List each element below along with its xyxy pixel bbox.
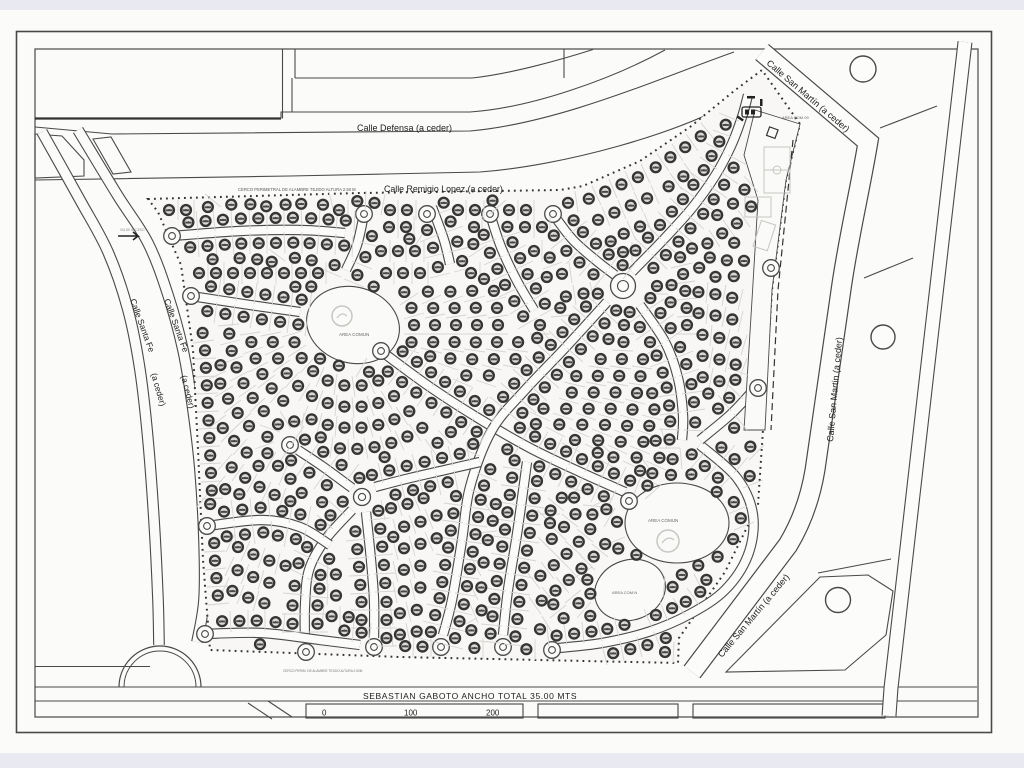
svg-text:0: 0 bbox=[322, 709, 327, 718]
svg-text:AREA COMUN: AREA COMUN bbox=[339, 332, 369, 337]
svg-text:SEBASTIAN GABOTO ANCHO TOTAL: SEBASTIAN GABOTO ANCHO TOTAL 35.00 MTS bbox=[363, 691, 577, 701]
svg-text:AREA COM 09: AREA COM 09 bbox=[782, 115, 809, 120]
svg-text:Calle Defensa (a ceder): Calle Defensa (a ceder) bbox=[357, 123, 452, 133]
svg-text:VIA DE ACCESO: VIA DE ACCESO bbox=[120, 228, 145, 232]
svg-text:Calle Remigio Lopez (a ceder): Calle Remigio Lopez (a ceder) bbox=[384, 184, 503, 194]
svg-text:CERCO PERIM. DE ALAMBRE TEJIDO: CERCO PERIM. DE ALAMBRE TEJIDO ALTURA 2.… bbox=[283, 669, 363, 673]
svg-text:AREA COM.N: AREA COM.N bbox=[612, 590, 637, 595]
svg-text:CERCO PERIMETRAL DE ALAMBRE TE: CERCO PERIMETRAL DE ALAMBRE TEJIDO ALTUR… bbox=[238, 187, 356, 192]
svg-text:100: 100 bbox=[404, 709, 418, 718]
svg-text:AREA COMUN: AREA COMUN bbox=[648, 518, 678, 523]
svg-text:200: 200 bbox=[486, 709, 500, 718]
